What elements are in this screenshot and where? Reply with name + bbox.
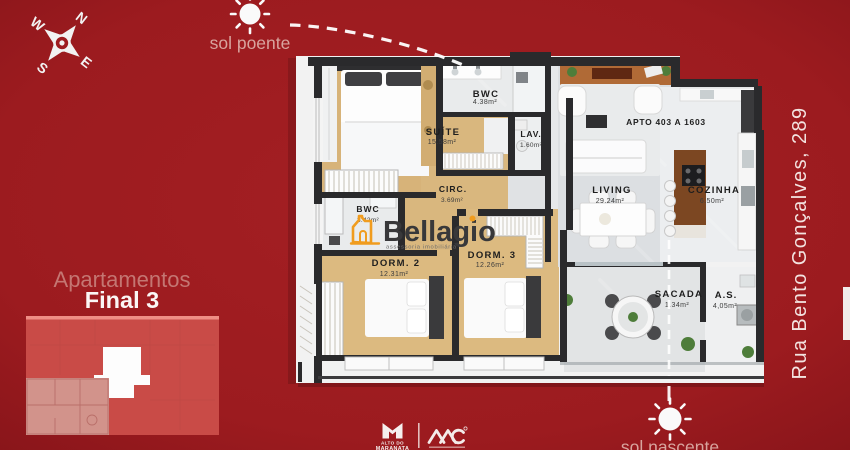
- svg-text:3.69m²: 3.69m²: [441, 197, 464, 204]
- svg-text:1.60m²: 1.60m²: [520, 142, 543, 149]
- svg-text:assessoria imobiliária: assessoria imobiliária: [386, 245, 457, 251]
- svg-text:sol nascente: sol nascente: [621, 437, 719, 450]
- svg-text:DORM. 2: DORM. 2: [372, 258, 421, 269]
- svg-text:BWC: BWC: [356, 204, 379, 214]
- svg-text:6.50m²: 6.50m²: [700, 198, 724, 205]
- svg-text:LIVING: LIVING: [592, 185, 631, 196]
- svg-text:15.58m²: 15.58m²: [428, 139, 457, 146]
- svg-text:DORM. 3: DORM. 3: [468, 250, 517, 261]
- svg-text:ALTO DO: ALTO DO: [381, 441, 404, 446]
- svg-text:Rua Bento Gonçalves, 289: Rua Bento Gonçalves, 289: [789, 108, 811, 380]
- svg-text:12.26m²: 12.26m²: [476, 262, 505, 269]
- svg-text:LAV.: LAV.: [520, 129, 541, 139]
- svg-text:COZINHA: COZINHA: [688, 185, 740, 196]
- svg-text:MARANATA: MARANATA: [376, 446, 410, 450]
- svg-text:APTO 403 A 1603: APTO 403 A 1603: [626, 117, 706, 127]
- svg-text:A.S.: A.S.: [715, 290, 737, 301]
- svg-text:4.38m²: 4.38m²: [473, 99, 497, 106]
- svg-text:sol poente: sol poente: [210, 33, 291, 53]
- svg-text:Bellagio: Bellagio: [383, 216, 496, 248]
- svg-text:29.24m²: 29.24m²: [596, 198, 625, 205]
- svg-text:CIRC.: CIRC.: [439, 184, 467, 194]
- svg-text:12.31m²: 12.31m²: [380, 271, 409, 278]
- svg-text:Final 3: Final 3: [85, 287, 159, 313]
- svg-text:SACADA: SACADA: [655, 289, 703, 300]
- svg-text:4,05m²: 4,05m²: [713, 303, 737, 310]
- svg-text:SUÍTE: SUÍTE: [426, 127, 460, 138]
